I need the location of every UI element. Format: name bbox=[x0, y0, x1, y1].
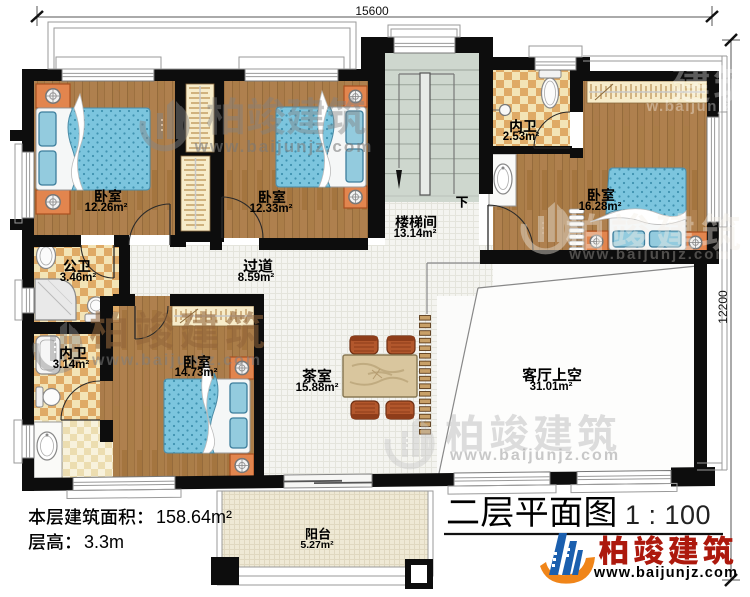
svg-text:5.27m²: 5.27m² bbox=[300, 539, 334, 551]
svg-text:31.01m²: 31.01m² bbox=[530, 381, 573, 393]
svg-text:12.26m²: 12.26m² bbox=[85, 202, 128, 214]
svg-text:12.33m²: 12.33m² bbox=[250, 203, 293, 215]
svg-text:14.73m²: 14.73m² bbox=[175, 367, 218, 379]
svg-text:1 : 100: 1 : 100 bbox=[625, 500, 711, 530]
svg-text:www.baijunjz.com: www.baijunjz.com bbox=[449, 447, 620, 464]
svg-text:16.28m²: 16.28m² bbox=[579, 201, 622, 213]
svg-text:www.baijunjz.com: www.baijunjz.com bbox=[568, 246, 730, 263]
svg-text:2.53m²: 2.53m² bbox=[503, 131, 540, 143]
svg-text:www.baijunjz.com: www.baijunjz.com bbox=[593, 565, 738, 581]
svg-text:15.88m²: 15.88m² bbox=[296, 382, 339, 394]
svg-text:8.59m²: 8.59m² bbox=[238, 272, 275, 284]
svg-text:www.baijunjz.com: www.baijunjz.com bbox=[194, 137, 374, 156]
svg-text:12200: 12200 bbox=[716, 290, 730, 324]
svg-text:13.14m²: 13.14m² bbox=[394, 228, 437, 240]
svg-text:3.14m²: 3.14m² bbox=[53, 359, 90, 371]
svg-text:158.64m²: 158.64m² bbox=[156, 507, 232, 527]
svg-text:3.46m²: 3.46m² bbox=[60, 272, 97, 284]
svg-text:w.baijunjz.com: w.baijunjz.com bbox=[645, 98, 750, 115]
svg-text:15600: 15600 bbox=[355, 4, 389, 18]
svg-text:3.3m: 3.3m bbox=[84, 532, 124, 552]
